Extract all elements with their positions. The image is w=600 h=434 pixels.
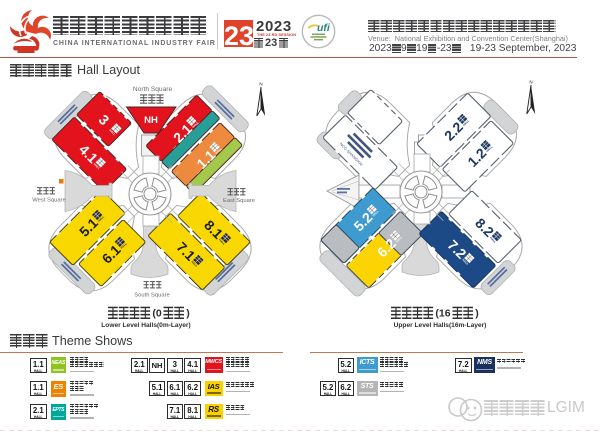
svg-text:N: N xyxy=(259,82,262,87)
svg-text:N: N xyxy=(529,80,532,85)
svg-text:Lower Level Halls(0m-Layer): Lower Level Halls(0m-Layer) xyxy=(101,322,190,329)
svg-text:ufi: ufi xyxy=(317,22,331,34)
svg-text:(0: (0 xyxy=(152,308,161,320)
svg-text:South Square: South Square xyxy=(134,293,169,299)
svg-text:): ) xyxy=(186,308,190,320)
svg-text:): ) xyxy=(475,308,479,320)
svg-text:West Square: West Square xyxy=(32,198,65,204)
svg-text:Upper Level Halls(16m-Layer): Upper Level Halls(16m-Layer) xyxy=(394,322,487,329)
svg-text:(16: (16 xyxy=(435,308,450,320)
svg-text:North Square: North Square xyxy=(133,86,173,93)
svg-text:NH: NH xyxy=(144,115,158,126)
svg-text:East Square: East Square xyxy=(223,198,255,204)
